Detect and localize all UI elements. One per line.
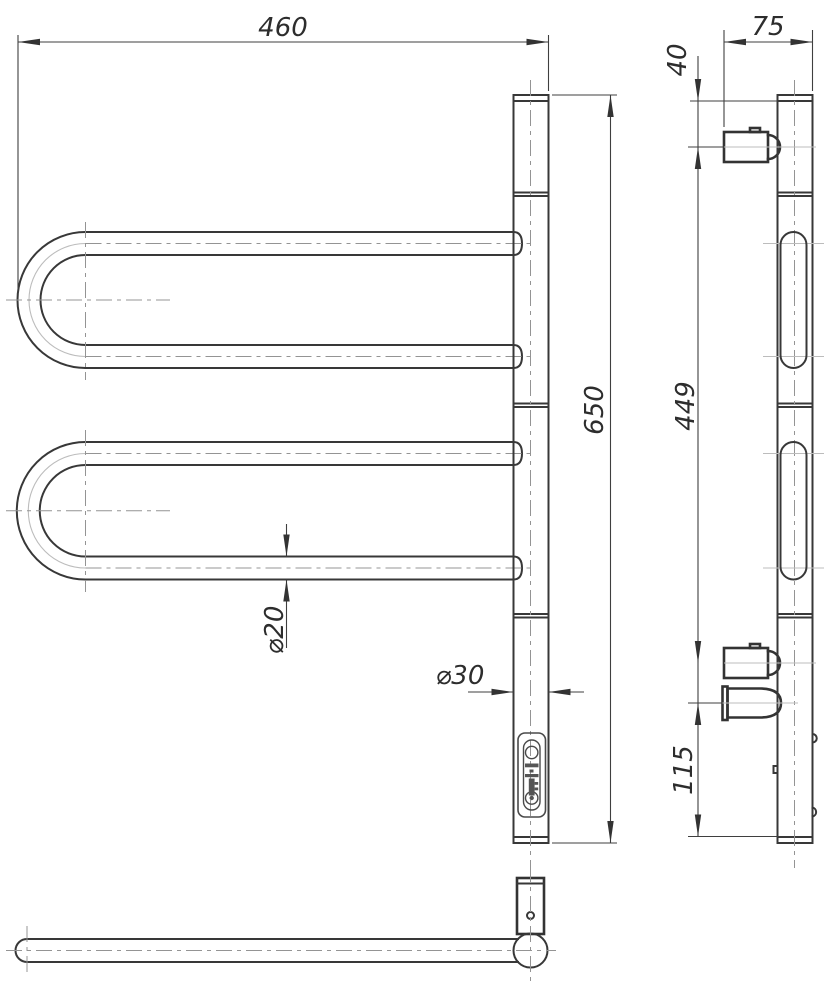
dim-tube-diameter: ⌀20 (260, 524, 290, 654)
dim-overall-height: 650 (552, 95, 617, 843)
bracket-tab (750, 128, 760, 132)
front-view: 460 650 ⌀30 ⌀20 (6, 13, 617, 868)
dim-post-diameter-label: ⌀30 (436, 661, 485, 691)
towel-rail-drawing: 460 650 ⌀30 ⌀20 (0, 0, 840, 988)
arm-silhouettes (763, 232, 824, 580)
arm-capsule-upper (781, 232, 807, 368)
dim-top-offset-label: 40 (663, 43, 693, 76)
dim-bracket-spacing-label: 449 (671, 381, 701, 431)
drawing-sheet: 460 650 ⌀30 ⌀20 (0, 0, 840, 988)
dim-tube-diameter-label: ⌀20 (260, 606, 290, 655)
swivel-arm-upper (6, 222, 533, 380)
wall-bracket-lower (724, 644, 780, 678)
dim-overall-width: 460 (18, 13, 549, 296)
bracket-tab (750, 644, 760, 648)
side-view: 75 40 449 115 (663, 12, 824, 868)
dim-bottom-offset-label: 115 (669, 745, 699, 795)
logo-top-circle (526, 746, 538, 758)
dim-overall-depth: 75 (724, 12, 813, 127)
dim-overall-width-label: 460 (258, 13, 308, 43)
bottom-view (6, 866, 556, 986)
swivel-arm-lower (6, 430, 533, 592)
dim-overall-height-label: 650 (580, 385, 610, 435)
side-tab (774, 766, 778, 773)
dim-post-diameter: ⌀30 (436, 661, 584, 695)
arm-capsule-lower (781, 442, 807, 580)
logo-plate (518, 733, 546, 817)
wall-bracket-upper (724, 128, 780, 162)
dim-overall-depth-label: 75 (751, 12, 784, 42)
